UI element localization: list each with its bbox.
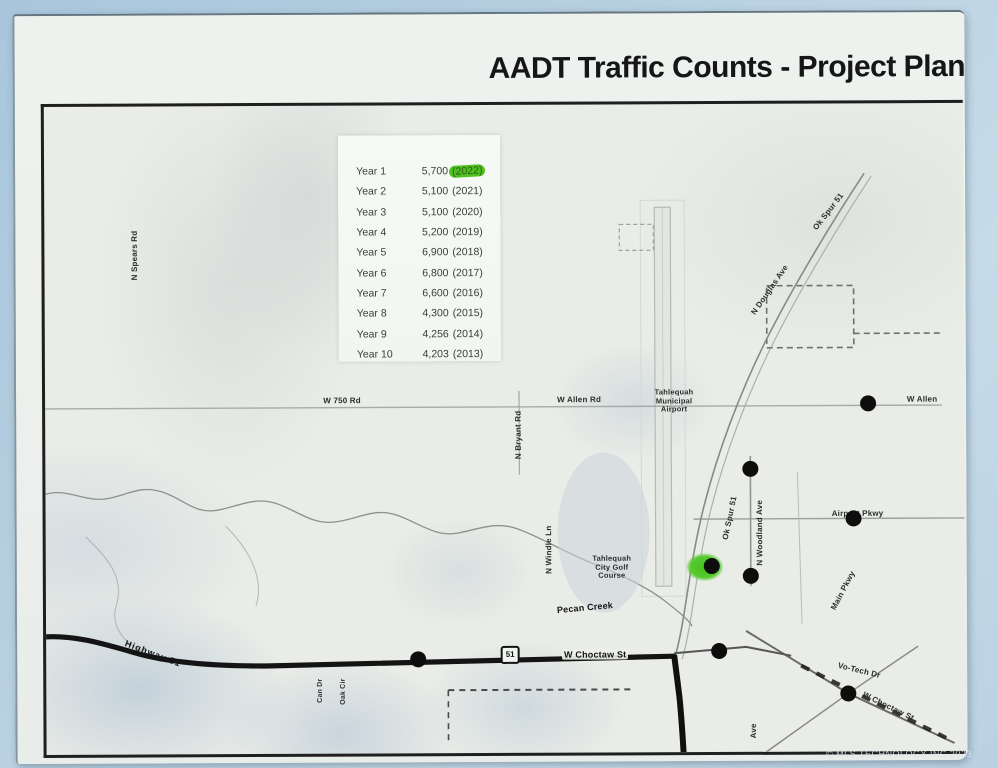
count-value: 5,700: [412, 165, 448, 177]
calendar-year: (2017): [452, 267, 482, 279]
place-label-airport: Tahlequah Municipal Airport: [655, 388, 694, 414]
calendar-year: (2019): [452, 226, 482, 238]
road-label-w-choctaw-st: W Choctaw St: [562, 649, 628, 659]
count-value: 4,300: [413, 307, 449, 319]
traffic-count-dot: [743, 568, 759, 584]
year-label: Year 5: [356, 247, 412, 259]
page-title: AADT Traffic Counts - Project Plann: [489, 50, 968, 86]
creek-branch: [86, 537, 147, 652]
road-label-n-bryant-rd: N Bryant Rd: [514, 411, 523, 459]
count-value: 5,100: [412, 186, 448, 198]
table-row: Year 84,300(2015): [339, 303, 501, 324]
calendar-year: (2013): [453, 348, 483, 360]
road-label-w-allen-rd: W Allen Rd: [557, 395, 601, 404]
traffic-count-dot: [846, 510, 862, 526]
road-ok-spur-51: [673, 173, 866, 656]
copyright-watermark: © MLS TECHNOLOGY INC 2023: [826, 749, 972, 759]
count-value: 6,800: [412, 267, 448, 279]
aadt-table: Year 15,700(2022) Year 25,100(2021) Year…: [338, 135, 501, 362]
table-row: Year 45,200(2019): [338, 222, 500, 243]
road-w-750-allen: [45, 405, 942, 409]
traffic-count-dot: [711, 643, 727, 659]
road-label-n-spears-rd: N Spears Rd: [130, 231, 139, 281]
traffic-map: Year 15,700(2022) Year 25,100(2021) Year…: [41, 100, 966, 758]
year-label: Year 6: [356, 267, 412, 279]
count-value: 5,200: [412, 226, 448, 238]
traffic-count-dot: [742, 461, 758, 477]
year-label: Year 10: [357, 348, 413, 360]
road-label-can-dr: Can Dr: [317, 679, 324, 703]
road-label-ave: Ave: [749, 723, 758, 738]
year-label: Year 3: [356, 206, 412, 218]
table-row: Year 15,700(2022): [338, 161, 500, 182]
calendar-year: (2015): [453, 307, 483, 319]
place-label-golf-course: Tahlequah City Golf Course: [592, 555, 631, 581]
table-row: Year 104,203(2013): [339, 344, 501, 365]
scanned-photo-background: AADT Traffic Counts - Project Plann: [0, 0, 998, 768]
traffic-count-dot: [410, 651, 426, 667]
year-label: Year 7: [357, 287, 413, 299]
road-label-n-windle-ln: N Windle Ln: [544, 526, 553, 574]
year-label: Year 1: [356, 165, 412, 177]
road-minor-vertical: [797, 472, 802, 624]
count-value: 5,100: [412, 206, 448, 218]
scanned-page: AADT Traffic Counts - Project Plann: [12, 10, 967, 764]
count-value: 6,900: [412, 247, 448, 259]
airport-dashed-pad: [619, 224, 653, 250]
road-label-w-750-rd: W 750 Rd: [323, 396, 361, 405]
calendar-year: (2016): [453, 287, 483, 299]
calendar-year: (2018): [452, 246, 482, 258]
table-row: Year 76,600(2016): [339, 283, 501, 304]
dashed-boundary-rect: [767, 285, 854, 347]
golf-course-area: [557, 452, 650, 612]
road-label-oak-cir: Oak Cir: [340, 678, 347, 704]
year-label: Year 9: [357, 328, 413, 340]
dashed-line-bottom: [448, 689, 633, 690]
traffic-count-dot: [840, 685, 856, 701]
count-value: 4,256: [413, 328, 449, 340]
calendar-year: (2014): [453, 328, 483, 340]
highway-51-shield: 51: [501, 646, 520, 664]
calendar-year-highlighted: (2022): [449, 164, 486, 178]
calendar-year: (2020): [452, 206, 482, 218]
road-label-w-allen-right: W Allen: [907, 395, 937, 404]
year-label: Year 4: [356, 226, 412, 238]
year-label: Year 8: [357, 308, 413, 320]
creek-branch-2: [226, 526, 259, 606]
table-row: Year 35,100(2020): [338, 202, 500, 223]
count-value: 6,600: [413, 287, 449, 299]
road-muskogee-south: [674, 655, 683, 752]
road-label-n-woodland-ave: N Woodland Ave: [755, 500, 764, 566]
table-row: Year 94,256(2014): [339, 323, 501, 344]
count-value: 4,203: [413, 348, 449, 360]
traffic-count-dot-highlighted: [704, 558, 720, 574]
table-row: Year 66,800(2017): [338, 262, 500, 283]
traffic-count-dot: [860, 395, 876, 411]
road-airport-pkwy: [694, 518, 965, 519]
table-row: Year 56,900(2018): [338, 242, 500, 263]
calendar-year: (2021): [452, 185, 482, 197]
table-row: Year 25,100(2021): [338, 181, 500, 202]
year-label: Year 2: [356, 186, 412, 198]
